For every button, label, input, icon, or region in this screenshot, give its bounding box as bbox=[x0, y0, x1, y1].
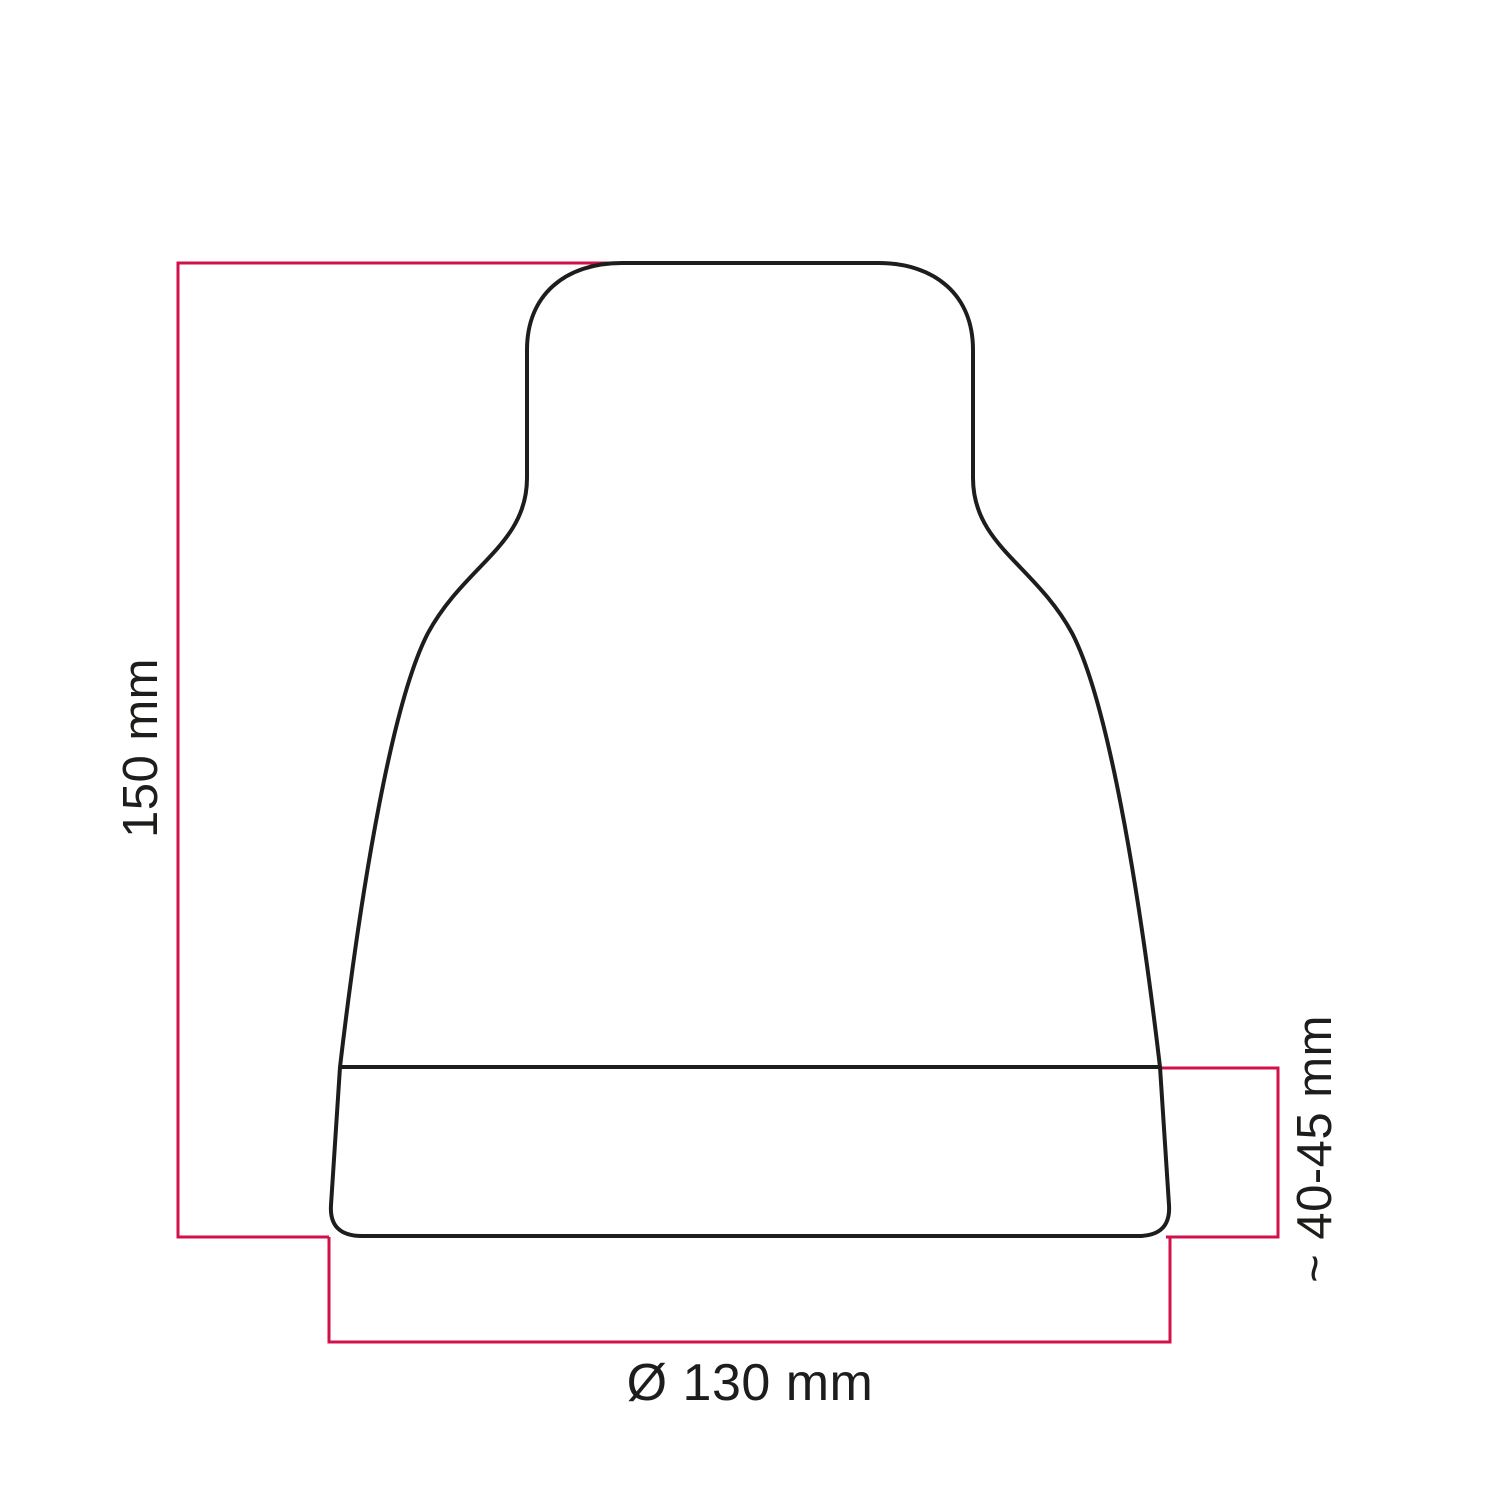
height-dimension-line bbox=[178, 263, 640, 1237]
product-outline bbox=[331, 263, 1169, 1236]
height-dimension-label: 150 mm bbox=[114, 658, 168, 838]
dimension-diagram: 150 mm ~ 40-45 mm Ø 130 mm bbox=[0, 0, 1500, 1500]
diameter-dimension-label: Ø 130 mm bbox=[627, 1354, 874, 1412]
base-height-dimension-line bbox=[1158, 1068, 1278, 1237]
base-height-dimension-label: ~ 40-45 mm bbox=[1288, 1015, 1342, 1283]
diagram-page: 150 mm ~ 40-45 mm Ø 130 mm bbox=[0, 0, 1500, 1500]
diameter-dimension-line bbox=[329, 1237, 1170, 1342]
